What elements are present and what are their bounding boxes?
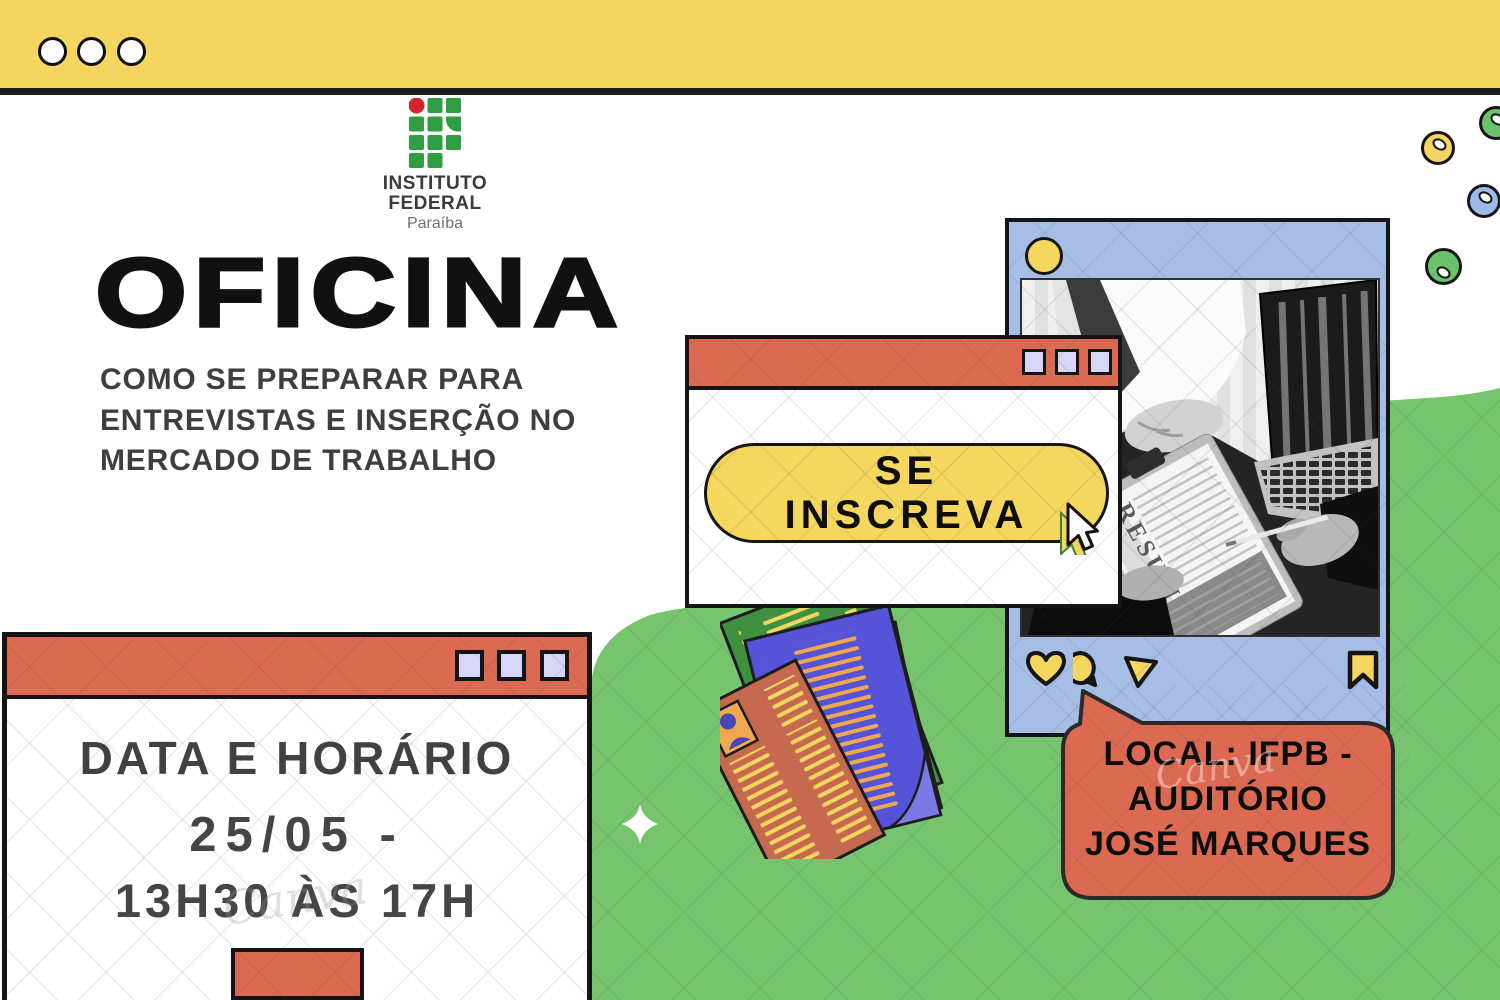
avatar-circle (1025, 237, 1063, 275)
logo-line-1: INSTITUTO (345, 174, 525, 194)
window-dot (38, 37, 67, 66)
location-line-1: LOCAL: IFPB - (1063, 732, 1393, 777)
top-bar (0, 0, 1500, 95)
window-dot (117, 37, 146, 66)
se-inscreva-button[interactable]: SE INSCREVA (704, 443, 1109, 543)
cursor-icon (1057, 497, 1109, 555)
schedule-heading: DATA E HORÁRIO (7, 731, 587, 785)
decorative-ball-blue (1467, 184, 1500, 218)
schedule-window: DATA E HORÁRIO 25/05 - 13H30 ÀS 17H Canv… (2, 632, 592, 1000)
button-label-line-1: SE (875, 449, 938, 493)
page-subtitle: COMO SE PREPARAR PARA ENTREVISTAS E INSE… (100, 360, 576, 482)
logo-line-2: FEDERAL (345, 194, 525, 214)
subtitle-line-2: ENTREVISTAS E INSERÇÃO NO (100, 401, 576, 442)
window-control-square (540, 650, 569, 681)
window-control-square (455, 650, 484, 681)
window-control-square (1055, 349, 1079, 375)
window-control-square (1022, 349, 1046, 375)
flyer-canvas: INSTITUTO FEDERAL Paraíba OFICINA COMO S… (0, 0, 1500, 1000)
decorative-ball-green (1425, 248, 1462, 285)
heart-icon[interactable] (1025, 650, 1067, 688)
window-control-square (497, 650, 526, 681)
schedule-time: 13H30 ÀS 17H (7, 873, 587, 928)
decorative-ball-yellow (1421, 131, 1455, 165)
ifpb-logo: INSTITUTO FEDERAL Paraíba (345, 98, 525, 233)
subtitle-line-1: COMO SE PREPARAR PARA (100, 360, 576, 401)
page-title: OFICINA (95, 252, 624, 334)
schedule-date: 25/05 - (7, 807, 587, 863)
schedule-window-body: DATA E HORÁRIO 25/05 - 13H30 ÀS 17H Canv… (7, 731, 587, 1000)
schedule-window-header (7, 637, 587, 699)
logo-line-3: Paraíba (345, 214, 525, 233)
decorative-ball-green (1479, 106, 1500, 140)
window-dot (77, 37, 106, 66)
signup-window-header (689, 339, 1118, 390)
bookmark-icon[interactable] (1347, 650, 1379, 690)
button-label-line-2: INSCREVA (785, 493, 1029, 537)
schedule-accent-button[interactable] (231, 948, 364, 1000)
location-line-3: JOSÉ MARQUES (1063, 822, 1393, 867)
location-bubble: LOCAL: IFPB - AUDITÓRIO JOSÉ MARQUES Can… (1050, 685, 1410, 910)
comment-icon[interactable] (1073, 650, 1113, 688)
location-line-2: AUDITÓRIO (1063, 777, 1393, 822)
signup-window: SE INSCREVA (685, 335, 1122, 608)
subtitle-line-3: MERCADO DE TRABALHO (100, 441, 576, 482)
window-control-square (1088, 349, 1112, 375)
documents-illustration (720, 594, 950, 859)
sparkle-icon (622, 804, 658, 844)
ifpb-logo-icon (409, 98, 461, 168)
